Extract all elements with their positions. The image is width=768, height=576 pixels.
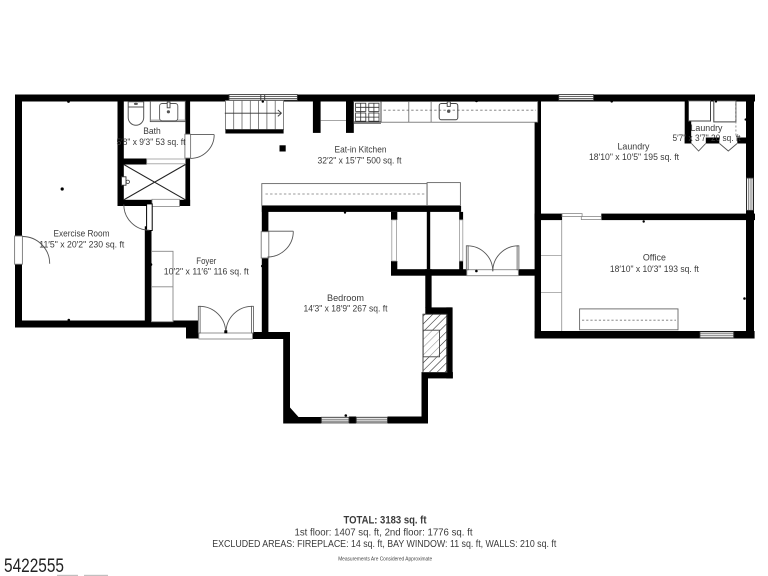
svg-text:Bedroom: Bedroom xyxy=(327,293,364,304)
svg-text:Foyer: Foyer xyxy=(196,256,216,267)
svg-text:TOTAL: 3183 sq. ft: TOTAL: 3183 sq. ft xyxy=(344,514,427,526)
svg-text:Laundry: Laundry xyxy=(618,141,650,152)
svg-text:10′2" x 11′6" 116 sq. ft: 10′2" x 11′6" 116 sq. ft xyxy=(164,266,249,277)
svg-text:5′7" x 3′7" 20 sq. ft: 5′7" x 3′7" 20 sq. ft xyxy=(673,133,741,144)
svg-text:Measurements Are Considered Ap: Measurements Are Considered Approximate xyxy=(338,556,432,562)
svg-text:Bath: Bath xyxy=(143,126,161,137)
svg-text:Office: Office xyxy=(643,252,666,263)
svg-text:18′10" x 10′3" 193 sq. ft: 18′10" x 10′3" 193 sq. ft xyxy=(610,264,699,275)
svg-text:32′2" x 15′7" 500 sq. ft: 32′2" x 15′7" 500 sq. ft xyxy=(318,155,402,166)
svg-text:Eat-in Kitchen: Eat-in Kitchen xyxy=(335,145,387,156)
svg-text:5′8" x 9′3" 53 sq. ft: 5′8" x 9′3" 53 sq. ft xyxy=(117,137,186,148)
svg-text:Exercise Room: Exercise Room xyxy=(54,229,110,240)
svg-text:1st floor: 1407 sq. ft, 2nd fl: 1st floor: 1407 sq. ft, 2nd floor: 1776 … xyxy=(295,527,473,538)
svg-text:18′10" x 10′5" 195 sq. ft: 18′10" x 10′5" 195 sq. ft xyxy=(589,152,679,163)
svg-text:EXCLUDED AREAS: FIREPLACE: 14: EXCLUDED AREAS: FIREPLACE: 14 sq. ft, BA… xyxy=(212,539,556,550)
svg-text:14′3" x 18′9" 267 sq. ft: 14′3" x 18′9" 267 sq. ft xyxy=(304,304,388,315)
svg-text:11′5" x 20′2" 230 sq. ft: 11′5" x 20′2" 230 sq. ft xyxy=(39,239,124,250)
svg-text:5422555: 5422555 xyxy=(4,555,64,576)
